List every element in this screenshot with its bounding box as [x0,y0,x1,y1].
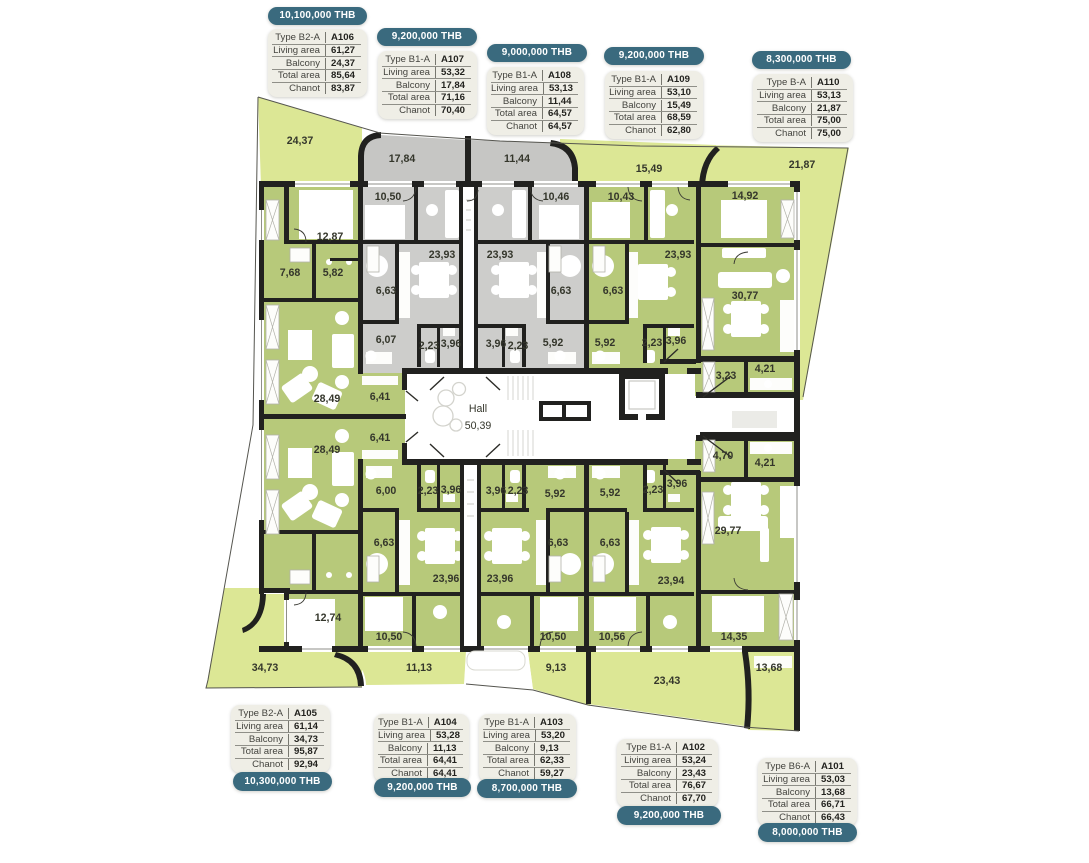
svg-text:23,93: 23,93 [429,249,456,261]
svg-text:28,49: 28,49 [314,444,341,456]
svg-text:5,92: 5,92 [545,488,566,500]
svg-text:6,63: 6,63 [551,285,572,297]
svg-text:10,50: 10,50 [540,631,567,643]
svg-text:Hall: Hall [469,403,487,415]
svg-text:12,74: 12,74 [315,612,342,624]
svg-text:4,21: 4,21 [755,457,776,469]
svg-text:13,68: 13,68 [756,662,783,674]
svg-text:11,44: 11,44 [504,153,530,165]
svg-text:23,94: 23,94 [658,575,685,587]
svg-text:50,39: 50,39 [465,420,492,432]
svg-text:2,23: 2,23 [508,485,529,497]
svg-text:2,23: 2,23 [418,485,439,497]
svg-text:10,56: 10,56 [599,631,626,643]
svg-text:3,96: 3,96 [667,478,688,490]
svg-text:4,21: 4,21 [755,363,776,375]
svg-text:30,77: 30,77 [732,290,759,302]
svg-text:3,96: 3,96 [486,338,507,350]
svg-text:23,93: 23,93 [487,249,514,261]
svg-text:2,23: 2,23 [419,340,440,352]
svg-text:2,23: 2,23 [643,484,664,496]
svg-text:6,41: 6,41 [370,391,391,403]
svg-text:6,63: 6,63 [603,285,624,297]
svg-text:2,23: 2,23 [642,337,663,349]
svg-text:14,35: 14,35 [721,631,748,643]
svg-text:3,96: 3,96 [441,338,462,350]
svg-text:5,92: 5,92 [543,337,564,349]
svg-text:28,49: 28,49 [314,393,341,405]
svg-text:10,43: 10,43 [608,191,635,203]
svg-text:10,46: 10,46 [543,191,570,203]
svg-text:9,13: 9,13 [546,662,567,674]
svg-text:6,07: 6,07 [376,334,397,346]
svg-text:6,63: 6,63 [548,537,569,549]
svg-text:34,73: 34,73 [252,662,279,674]
svg-text:3,96: 3,96 [441,484,462,496]
svg-text:23,96: 23,96 [433,573,460,585]
svg-text:10,50: 10,50 [376,631,403,643]
svg-text:14,92: 14,92 [732,190,759,202]
svg-text:5,92: 5,92 [595,337,616,349]
svg-text:6,63: 6,63 [376,285,397,297]
svg-text:7,68: 7,68 [280,267,301,279]
svg-text:6,63: 6,63 [600,537,621,549]
svg-text:2,23: 2,23 [508,340,529,352]
svg-text:3,96: 3,96 [486,485,507,497]
svg-text:29,77: 29,77 [715,525,742,537]
svg-text:23,96: 23,96 [487,573,514,585]
svg-text:6,41: 6,41 [370,432,391,444]
svg-text:23,43: 23,43 [654,675,681,687]
svg-text:6,63: 6,63 [374,537,395,549]
svg-text:10,50: 10,50 [375,191,402,203]
svg-text:12,87: 12,87 [317,231,344,243]
svg-text:17,84: 17,84 [389,153,416,165]
svg-text:15,49: 15,49 [636,163,663,175]
svg-text:3,96: 3,96 [666,335,687,347]
svg-text:5,92: 5,92 [600,487,621,499]
svg-text:4,70: 4,70 [713,450,734,462]
svg-text:3,23: 3,23 [716,370,737,382]
svg-text:6,00: 6,00 [376,485,397,497]
svg-text:24,37: 24,37 [287,135,314,147]
svg-text:21,87: 21,87 [789,159,816,171]
svg-text:5,82: 5,82 [323,267,344,279]
svg-text:23,93: 23,93 [665,249,692,261]
svg-text:11,13: 11,13 [406,662,432,674]
